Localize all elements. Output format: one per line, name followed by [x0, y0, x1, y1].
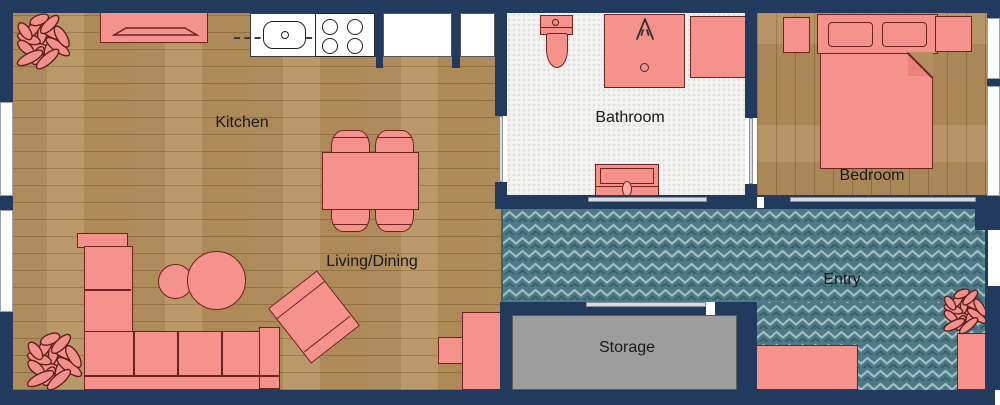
- toilet-flush-icon: [552, 19, 559, 26]
- sofa-right-armrest: [259, 327, 280, 389]
- washer: [690, 16, 746, 78]
- sofa-cushion-line: [85, 289, 131, 291]
- coffee-table-large: [187, 251, 246, 310]
- floor-threshold: [501, 209, 503, 305]
- shower-drain-icon: [640, 63, 649, 72]
- room-label-storage: Storage: [567, 338, 687, 358]
- sink-faucet-icon: [281, 31, 289, 39]
- dining-chair: [331, 207, 370, 232]
- wall-storage-left: [500, 302, 512, 390]
- wall-top: [0, 0, 1000, 13]
- door-jamb: [757, 197, 764, 208]
- window-left-lower: [0, 210, 13, 312]
- shoe-cabinet: [957, 333, 987, 390]
- wall-bathroom-left-stub: [495, 182, 507, 195]
- wall-bathroom-right: [745, 13, 757, 118]
- wall-bottom: [0, 390, 995, 405]
- stove-burner-icon: [322, 38, 338, 54]
- entry-bench: [755, 345, 858, 390]
- wall-pillar: [376, 13, 383, 68]
- window-left-upper: [0, 102, 13, 196]
- sofa-seat: [84, 331, 280, 390]
- room-label-living: Living/Dining: [297, 252, 447, 272]
- window-right-upper: [987, 18, 1000, 79]
- sliding-door-bathroom-entry: [588, 197, 707, 202]
- sofa-back-line: [85, 375, 279, 377]
- room-label-bedroom: Bedroom: [812, 166, 932, 186]
- dining-chair: [375, 207, 414, 232]
- sliding-door-bathroom-right: [749, 118, 753, 184]
- sliding-door-bedroom-entry: [790, 197, 976, 202]
- door-jamb: [706, 302, 715, 315]
- sofa-cushion-line: [133, 332, 135, 375]
- wall-left-mullion: [0, 196, 13, 210]
- plant-icon: [941, 288, 987, 334]
- window-right-lower: [987, 86, 1000, 196]
- sliding-door-bathroom-left: [499, 116, 503, 182]
- stove-burner-icon: [322, 19, 338, 35]
- shower-head-icon: [631, 16, 659, 42]
- kitchen-cabinet-block: [460, 13, 495, 57]
- room-label-bathroom: Bathroom: [570, 108, 690, 128]
- wall-left-lower: [0, 312, 13, 405]
- wall-bathroom-right-stub: [745, 184, 757, 195]
- sofa-cushion-line: [221, 332, 223, 375]
- wall-right-mullion: [987, 79, 1000, 86]
- floor-plan: Kitchen Living/Dining Bathroom Bedroom E…: [0, 0, 1000, 405]
- nightstand-left: [783, 17, 810, 53]
- nightstand-right: [935, 16, 972, 52]
- plant-icon: [24, 332, 82, 390]
- stove-burner-icon: [347, 38, 363, 54]
- dining-table: [322, 152, 419, 210]
- entry-floor-upper: [503, 209, 985, 303]
- plant-icon: [14, 13, 70, 69]
- kitchen-cabinet-block: [383, 13, 452, 57]
- wall-right-top: [987, 0, 1000, 18]
- wall-right-bottom-block: [985, 286, 1000, 390]
- pillow: [828, 22, 873, 47]
- wall-pillar: [452, 13, 460, 68]
- media-cabinet: [462, 312, 502, 390]
- pillow: [882, 22, 927, 47]
- wall-storage-right: [737, 302, 757, 390]
- sofa-cushion-line: [177, 332, 179, 375]
- wall-right-thin: [985, 230, 988, 286]
- room-label-kitchen: Kitchen: [182, 113, 302, 133]
- sliding-door-storage: [586, 302, 706, 307]
- stove-burner-icon: [347, 19, 363, 35]
- room-label-entry: Entry: [792, 270, 892, 290]
- toilet-tank-line: [540, 27, 573, 28]
- cabinet-side-unit: [438, 337, 463, 364]
- wall-bathroom-left: [495, 13, 507, 116]
- toilet-bowl: [546, 33, 568, 68]
- wall-left-upper: [0, 0, 13, 102]
